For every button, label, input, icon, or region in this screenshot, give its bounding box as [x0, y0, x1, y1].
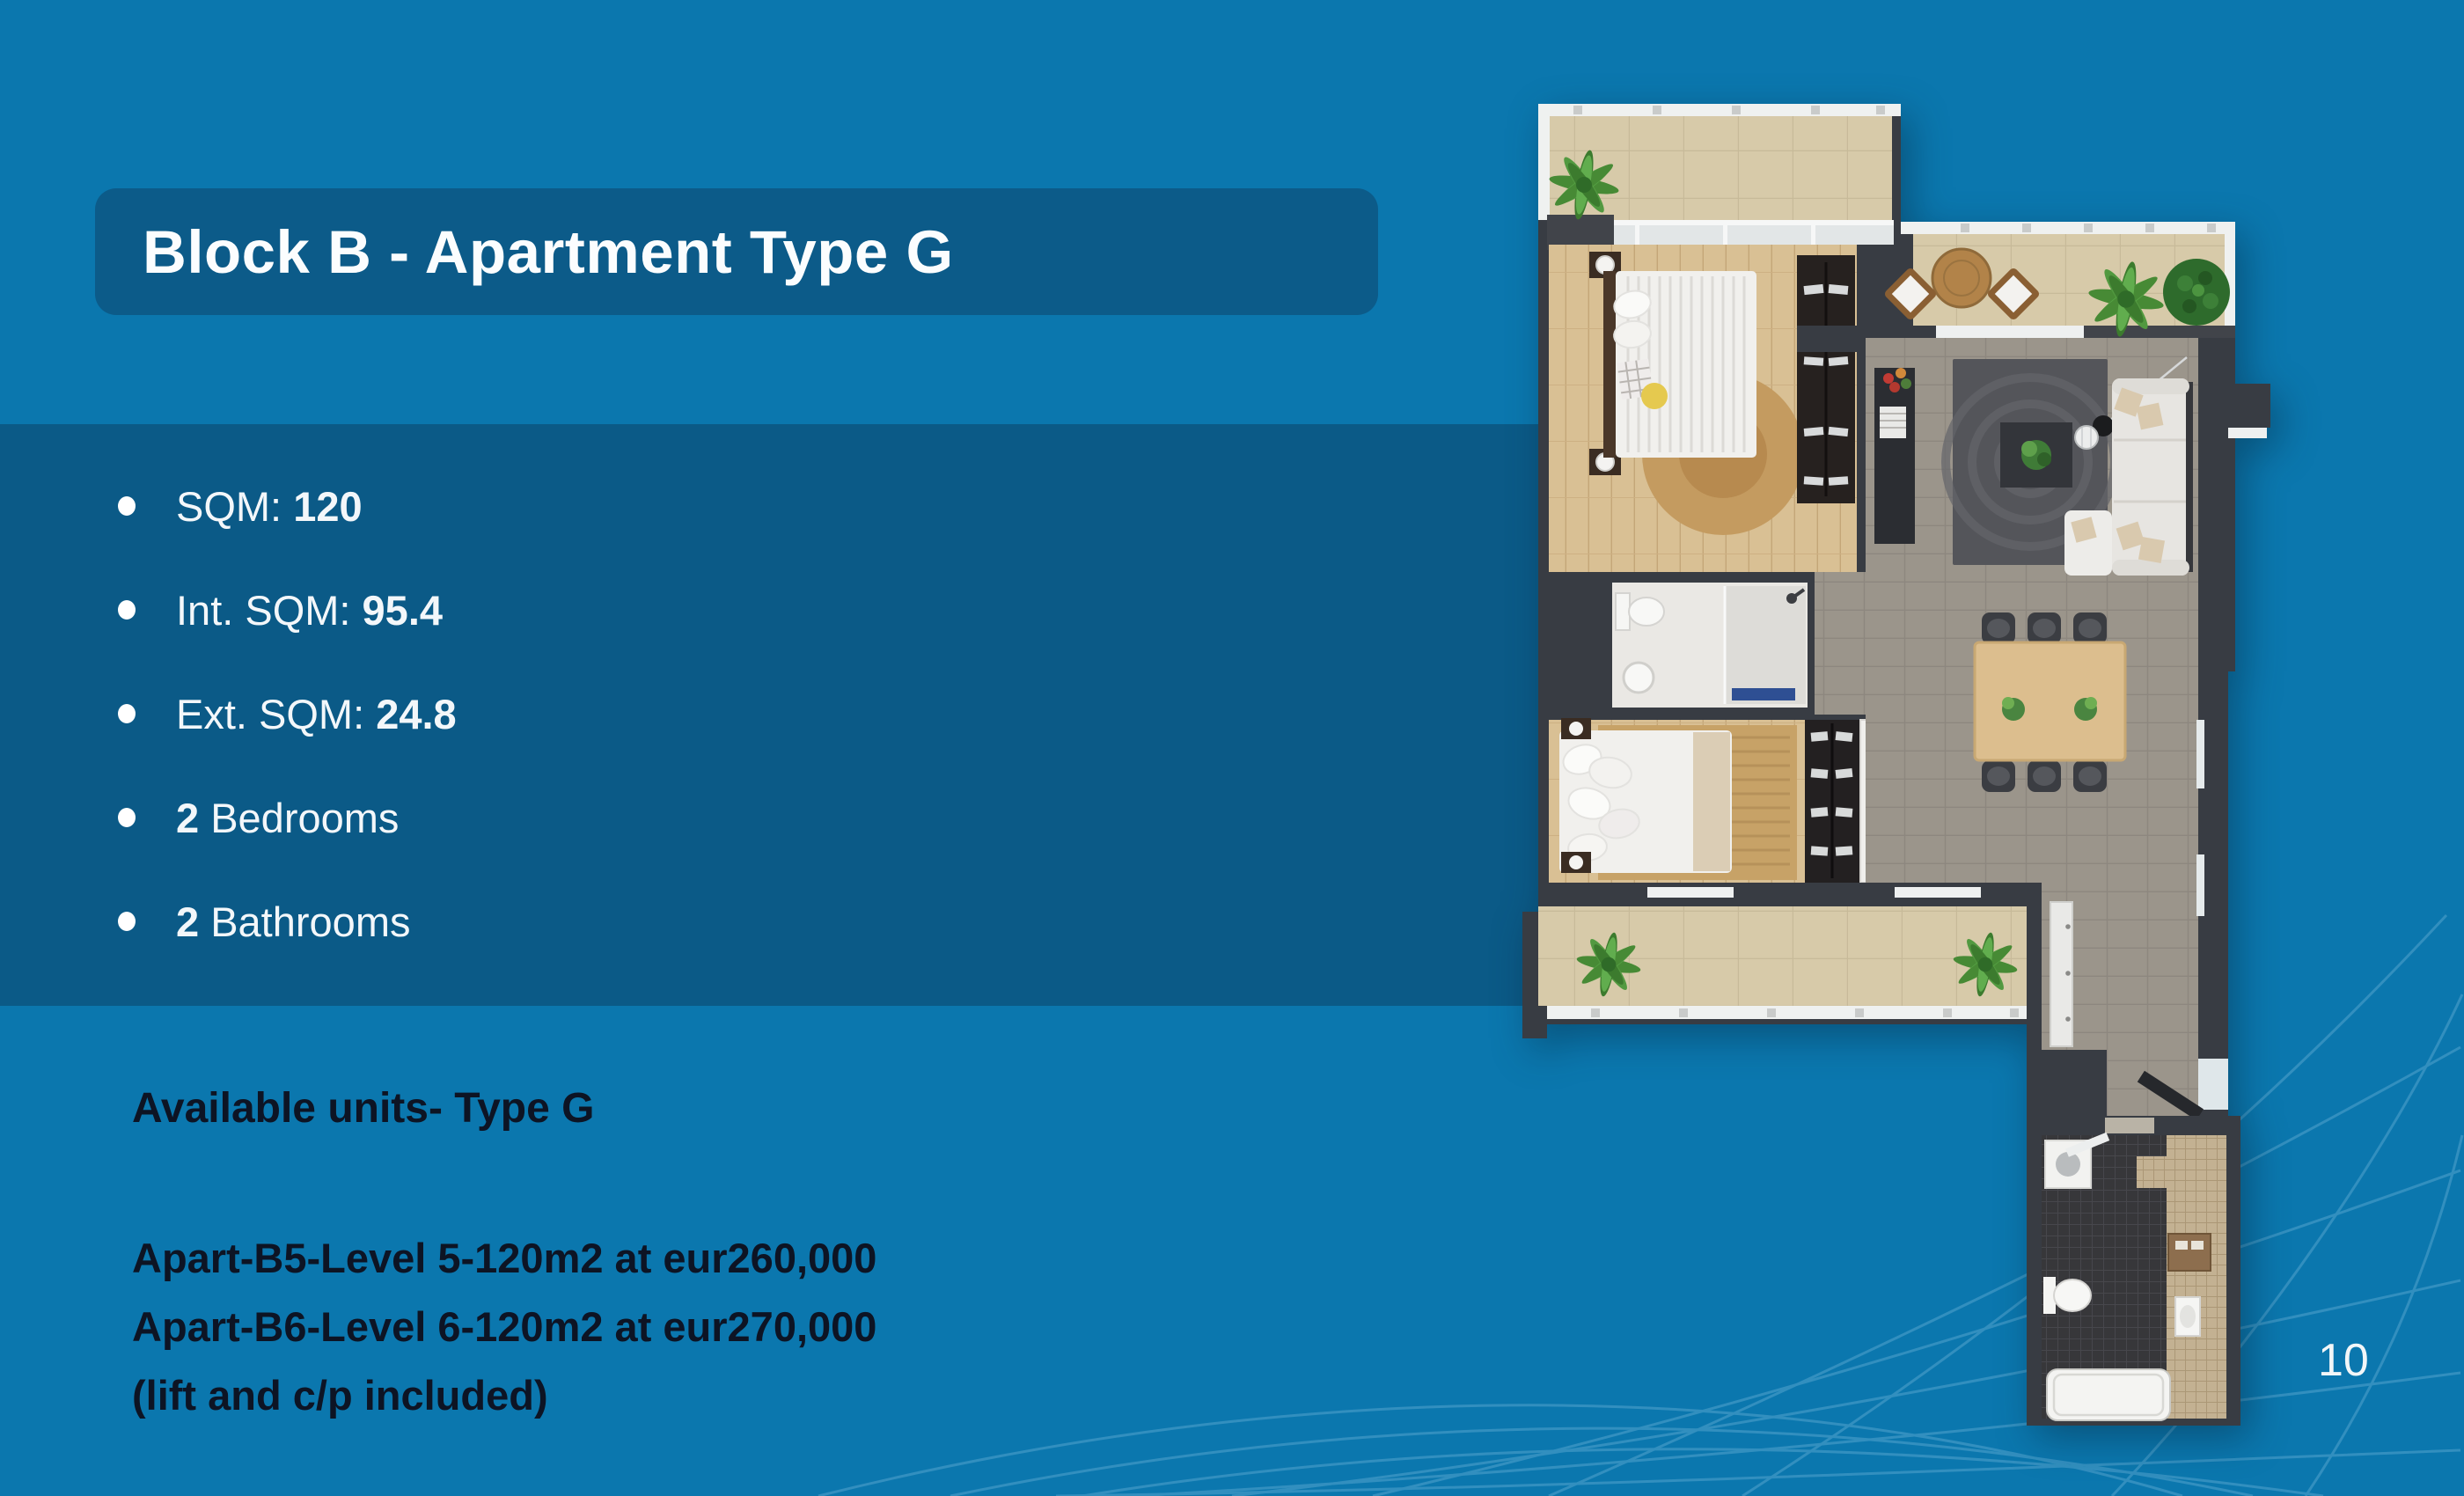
- bullet-icon: [118, 808, 136, 827]
- specs-panel: SQM: 120 Int. SQM: 95.4 Ext. SQM: 24.8 2…: [0, 424, 1546, 1006]
- floor-plan-image: [1521, 104, 2270, 1426]
- availability-lines: Apart-B5-Level 5-120m2 at eur260,000Apar…: [132, 1224, 1276, 1430]
- entry-opening: [2198, 1059, 2228, 1110]
- bullet-icon: [118, 912, 136, 931]
- page-number: 10: [2318, 1334, 2369, 1387]
- availability-section: Available units- Type G Apart-B5-Level 5…: [132, 1084, 1276, 1430]
- availability-line: Apart-B5-Level 5-120m2 at eur260,000: [132, 1224, 1276, 1293]
- spec-value: 2: [176, 898, 199, 946]
- page-title: Block B - Apartment Type G: [143, 217, 954, 287]
- spec-value: 120: [293, 482, 362, 531]
- hallway: [1815, 572, 1866, 720]
- spec-label: Int. SQM:: [176, 586, 363, 634]
- wardrobe: [1797, 255, 1855, 503]
- terrace-top: [1538, 104, 1901, 250]
- shelf: [2168, 1234, 2211, 1271]
- bathtub: [2047, 1369, 2170, 1420]
- bullet-icon: [118, 704, 136, 723]
- spec-value: 24.8: [376, 690, 456, 738]
- dining-area: [1975, 612, 2125, 792]
- spec-item: Int. SQM: 95.4: [118, 558, 457, 662]
- spec-item: 2 Bathrooms: [118, 869, 457, 973]
- toilet: [2043, 1277, 2091, 1314]
- availability-line: (lift and c/p included): [132, 1361, 1276, 1430]
- outdoor-table: [1932, 249, 1991, 307]
- availability-heading: Available units- Type G: [132, 1084, 1276, 1133]
- spec-label: SQM:: [176, 482, 293, 531]
- bullet-icon: [118, 600, 136, 620]
- dining-table: [1975, 642, 2125, 760]
- availability-line: Apart-B6-Level 6-120m2 at eur270,000: [132, 1293, 1276, 1361]
- spec-label: Ext. SQM:: [176, 690, 376, 738]
- shower-mat: [1732, 688, 1795, 700]
- double-bed: [1589, 252, 1756, 475]
- spec-value: 95.4: [363, 586, 443, 634]
- second-bathroom: [2027, 1116, 2240, 1420]
- sink: [2175, 1297, 2200, 1336]
- bush-plant: [2163, 259, 2230, 326]
- spec-item: SQM: 120: [118, 454, 457, 558]
- balcony: [1538, 883, 2042, 1118]
- spec-item: Ext. SQM: 24.8: [118, 662, 457, 766]
- title-banner: Block B - Apartment Type G: [95, 188, 1378, 315]
- bed: [1559, 718, 1732, 873]
- shower: [1725, 586, 1806, 704]
- specs-list: SQM: 120 Int. SQM: 95.4 Ext. SQM: 24.8 2…: [118, 454, 457, 973]
- spec-label-suffix: Bedrooms: [199, 794, 399, 842]
- master-bedroom: [1549, 245, 1857, 572]
- tv-console: [1874, 368, 1915, 544]
- slide: Block B - Apartment Type G SQM: 120 Int.…: [0, 0, 2464, 1496]
- coffee-table: [2000, 422, 2072, 488]
- terrace-right: [1883, 222, 2235, 338]
- sink: [1624, 663, 1654, 693]
- second-bedroom: [1549, 718, 1805, 883]
- bullet-icon: [118, 496, 136, 516]
- spec-value: 2: [176, 794, 199, 842]
- spec-item: 2 Bedrooms: [118, 766, 457, 869]
- ensuite-bathroom: [1549, 572, 1866, 720]
- spec-label-suffix: Bathrooms: [199, 898, 410, 946]
